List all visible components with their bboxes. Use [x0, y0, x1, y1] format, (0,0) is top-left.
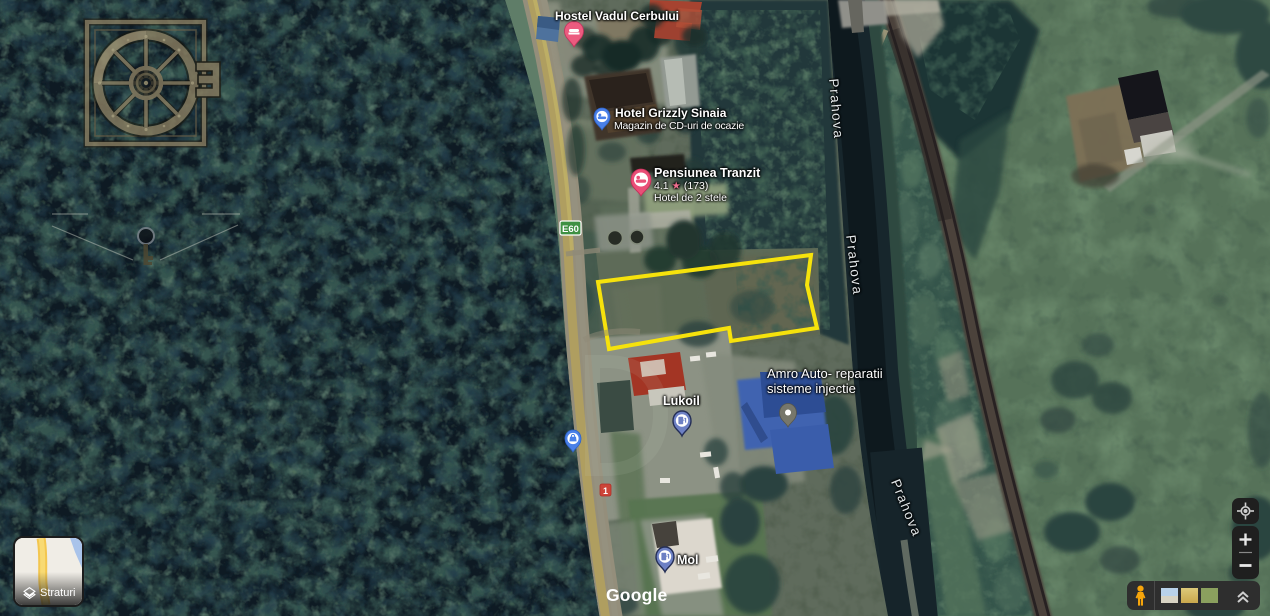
- svg-text:E60: E60: [562, 224, 579, 235]
- svg-text:1: 1: [603, 486, 608, 496]
